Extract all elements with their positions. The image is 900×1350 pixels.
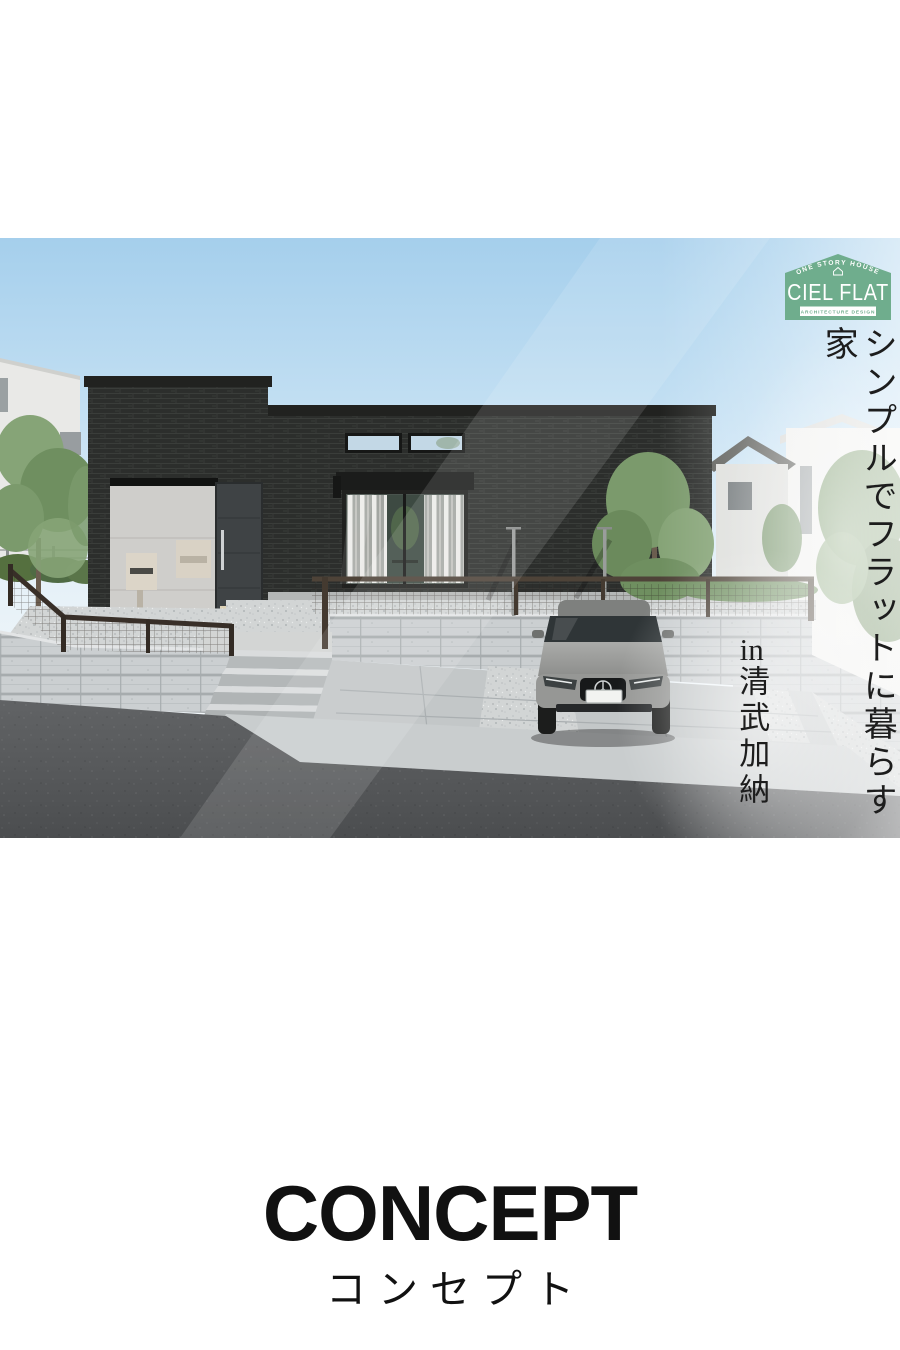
catchphrase-vertical-text: シンプルでフラットに暮らす家 <box>818 326 896 831</box>
ciel-flat-logo-badge: ONE STORY HOUSE CIEL FLAT ARCHITECTURE D… <box>782 246 894 324</box>
car-roof <box>558 600 650 616</box>
wall-delivery-box <box>176 540 211 578</box>
concept-subtitle: コンセプト <box>0 1270 900 1310</box>
logo-name: CIEL FLAT <box>787 280 889 306</box>
page: ONE STORY HOUSE CIEL FLAT ARCHITECTURE D… <box>0 0 900 1350</box>
location-name: 清武加納 <box>734 665 769 809</box>
hero-image: ONE STORY HOUSE CIEL FLAT ARCHITECTURE D… <box>0 238 900 838</box>
location-vertical-text: in清武加納 <box>733 634 770 834</box>
logo-sub-text: ARCHITECTURE DESIGN <box>801 310 876 316</box>
location-prefix: in <box>734 634 769 665</box>
concept-title: CONCEPT <box>0 1172 900 1254</box>
concept-section: CONCEPT コンセプト <box>0 1172 900 1310</box>
